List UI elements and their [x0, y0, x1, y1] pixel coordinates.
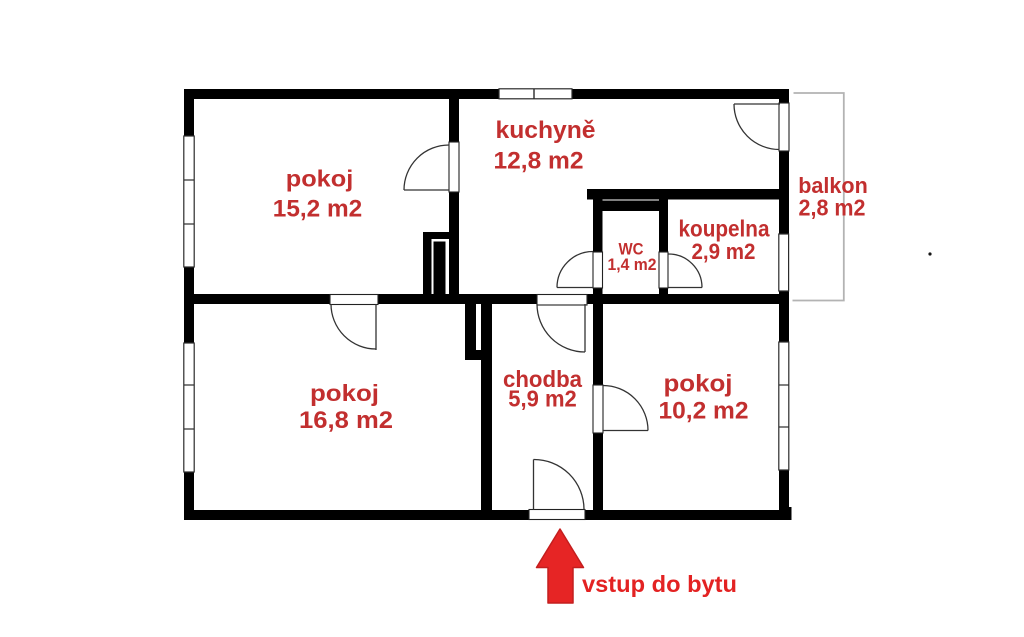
svg-text:pokoj: pokoj [286, 166, 354, 192]
svg-text:10,2 m2: 10,2 m2 [659, 398, 749, 425]
svg-text:pokoj: pokoj [310, 380, 379, 406]
svg-text:koupelna: koupelna [679, 216, 770, 242]
svg-text:15,2 m2: 15,2 m2 [273, 196, 363, 223]
svg-text:1,4 m2: 1,4 m2 [608, 256, 657, 274]
svg-text:2,8 m2: 2,8 m2 [799, 195, 866, 221]
svg-text:vstup do bytu: vstup do bytu [582, 571, 737, 597]
svg-text:pokoj: pokoj [664, 371, 733, 398]
svg-text:12,8 m2: 12,8 m2 [494, 148, 584, 175]
svg-text:2,9 m2: 2,9 m2 [692, 239, 756, 264]
svg-text:16,8 m2: 16,8 m2 [299, 407, 393, 434]
svg-text:5,9 m2: 5,9 m2 [508, 386, 577, 412]
svg-text:kuchyně: kuchyně [496, 117, 596, 144]
